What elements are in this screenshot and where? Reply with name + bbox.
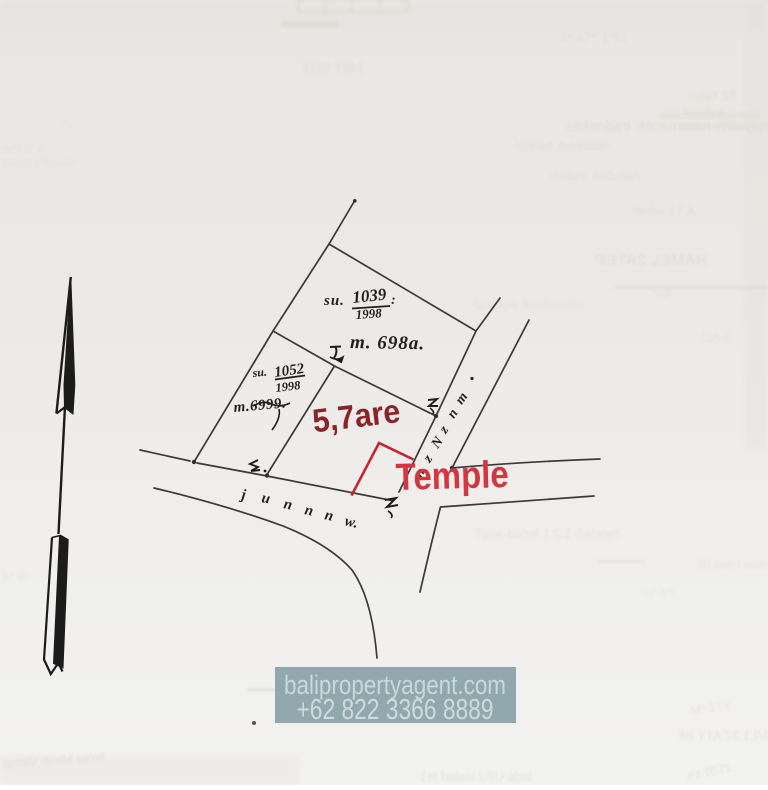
- svg-text:*tu* b*l: *tu* b*l: [640, 587, 674, 599]
- svg-text::: :: [391, 293, 396, 308]
- svg-text:146Y 3811: 146Y 3811: [302, 60, 364, 75]
- svg-text:es*l 1* st: es*l 1* st: [2, 143, 45, 155]
- svg-text:t*1: t*1: [60, 120, 73, 131]
- svg-text:nahusulaveK iagnacaP: nahusulaveK iagnacaP: [471, 299, 584, 311]
- svg-text:1039: 1039: [351, 284, 387, 307]
- svg-text:natahuleK haread: natahuleK haread: [515, 139, 610, 153]
- svg-text:1a*t 5: 1a*t 5: [700, 331, 732, 345]
- svg-text:+62 822 3366 8889: +62 822 3366 8889: [297, 694, 494, 726]
- svg-text:HAMEL 2ATEP: HAMEL 2ATEP: [594, 252, 707, 269]
- svg-text:nuteY 13: nuteY 13: [688, 89, 736, 103]
- svg-text:ls* d*: ls* d*: [2, 571, 28, 583]
- svg-text:su.: su.: [323, 293, 345, 309]
- svg-text:1st balasi LSU abst: 1st balasi LSU abst: [420, 769, 532, 784]
- svg-text:A T1 adnat: A T1 adnat: [632, 203, 695, 218]
- svg-text:ML1 32 ATY IM: ML1 32 ATY IM: [680, 728, 768, 743]
- svg-text:1998: 1998: [355, 305, 382, 322]
- svg-text:Temple: Temple: [395, 454, 509, 499]
- svg-text:haleteS 1.2.1 leriad asuT: haleteS 1.2.1 leriad asuT: [474, 526, 619, 541]
- svg-text:lodam s*tamle*: lodam s*tamle*: [2, 157, 77, 169]
- svg-text:m. 698a.: m. 698a.: [350, 332, 425, 354]
- svg-text:*ad*: *ad*: [652, 289, 674, 301]
- svg-text:1* 47*' 1*51: 1* 47*' 1*51: [560, 30, 628, 45]
- svg-text:nakubek itsaleb: nakubek itsaleb: [550, 168, 640, 183]
- svg-text:iaws rotue iW: iaws rotue iW: [695, 557, 768, 571]
- svg-text:su.: su.: [251, 365, 268, 381]
